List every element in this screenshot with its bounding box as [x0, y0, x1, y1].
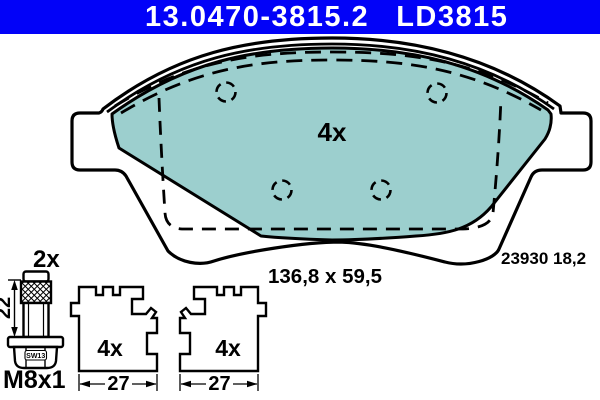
bolt-flange: [8, 337, 63, 347]
bolt-thread-label: M8x1: [3, 366, 66, 394]
drawing-canvas: 4x 136,8 x 59,5 23930 18,2 2x 22: [0, 0, 600, 400]
clip-width-value: 27: [107, 373, 129, 395]
bolt-wrench-label: SW13: [26, 353, 45, 360]
brake-pad-diagram: 4x 136,8 x 59,5 23930 18,2: [72, 38, 591, 288]
clip-width-value: 27: [208, 373, 230, 395]
bolt-length-dimension: 22: [0, 280, 21, 337]
bolt-tip: [24, 272, 49, 282]
clip-quantity-label: 4x: [97, 335, 123, 361]
wva-number-label: 23930 18,2: [501, 249, 586, 268]
pad-quantity-label: 4x: [318, 117, 347, 147]
clip-width-dimension: 27: [180, 373, 258, 395]
clip-left-diagram: 4x 27: [71, 287, 157, 395]
brake-pad-technical-drawing: 13.0470-3815.2 LD3815 4x 136,8 x 59,5: [0, 0, 600, 400]
pad-size-label: 136,8 x 59,5: [268, 265, 382, 288]
clip-width-dimension: 27: [79, 373, 157, 395]
bolt-shank: [24, 303, 49, 337]
clip-quantity-label: 4x: [215, 335, 241, 361]
bolt-quantity-label: 2x: [33, 246, 60, 273]
bolt-diagram: 2x 22 SW13 M8x: [0, 246, 66, 394]
clip-right-diagram: 4x 27: [180, 287, 266, 395]
bolt-length-value: 22: [0, 297, 15, 319]
